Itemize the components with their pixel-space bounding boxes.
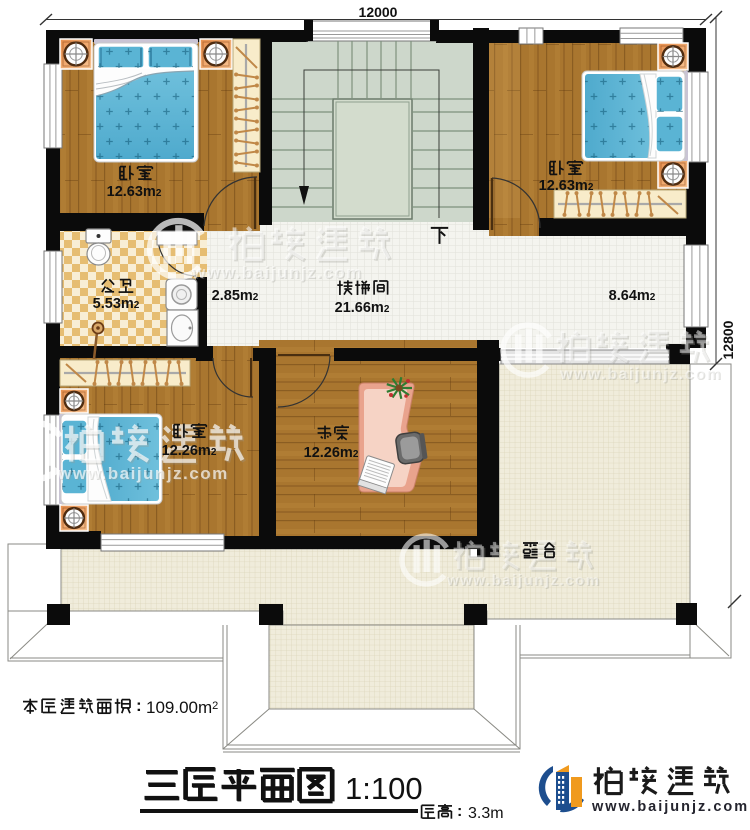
svg-text:2.85m2: 2.85m2 — [212, 288, 259, 304]
svg-text:1:100: 1:100 — [345, 771, 423, 806]
svg-text:www.baijunjz.com: www.baijunjz.com — [591, 799, 749, 815]
svg-text:12.63m2: 12.63m2 — [107, 184, 162, 200]
svg-text:12.26m2: 12.26m2 — [304, 445, 359, 461]
svg-text:21.66m2: 21.66m2 — [335, 300, 390, 316]
svg-text:12.26m2: 12.26m2 — [162, 443, 217, 459]
svg-text:12000: 12000 — [359, 4, 398, 20]
svg-text:12.63m2: 12.63m2 — [539, 178, 594, 194]
svg-text:www.baijunjz.com: www.baijunjz.com — [57, 464, 229, 483]
svg-text::: : — [136, 696, 142, 715]
svg-text::: : — [457, 803, 462, 820]
svg-text:12800: 12800 — [720, 320, 736, 359]
svg-text:www.baijunjz.com: www.baijunjz.com — [446, 572, 600, 589]
svg-text:8.64m2: 8.64m2 — [609, 288, 656, 304]
svg-text:www.baijunjz.com: www.baijunjz.com — [559, 366, 722, 383]
svg-text:5.53m2: 5.53m2 — [93, 296, 140, 312]
svg-text:www.baijunjz.com: www.baijunjz.com — [191, 263, 363, 282]
svg-text:3.3m: 3.3m — [468, 805, 504, 822]
svg-text:109.00m2: 109.00m2 — [146, 698, 218, 717]
